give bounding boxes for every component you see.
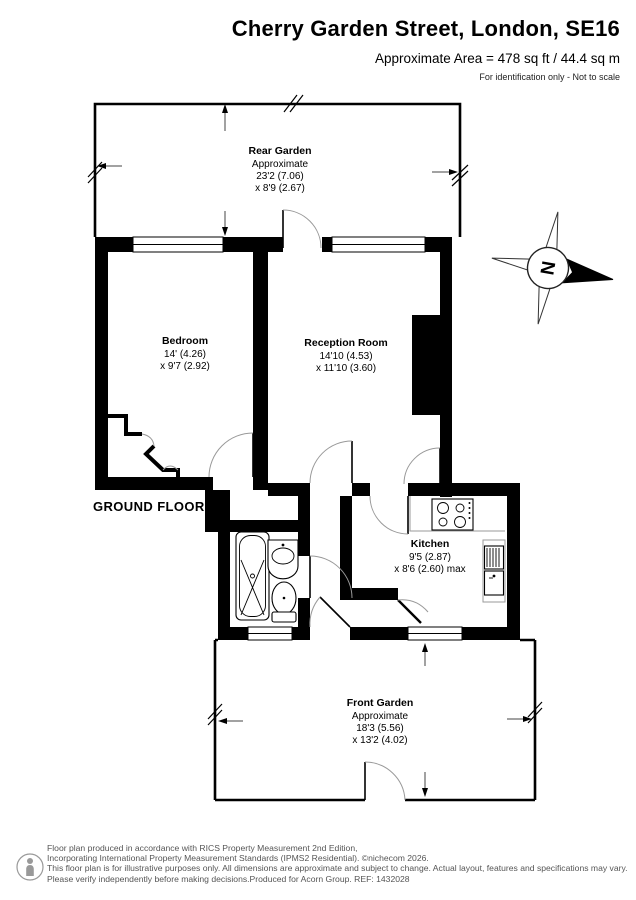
front-garden-room: Front Garden Approximate 18'3 (5.56) x 1… [208, 640, 542, 800]
front-garden-approx: Approximate [352, 711, 409, 722]
rear-garden-label: Rear Garden [248, 145, 311, 157]
toilet-icon [272, 582, 296, 622]
kitchen-dim1: 9'5 (2.87) [409, 552, 451, 563]
front-garden-label: Front Garden [347, 697, 414, 709]
kitchen-label: Kitchen [411, 538, 450, 550]
bedroom-alcove [108, 416, 178, 477]
chimney-breast [412, 315, 440, 415]
bedroom-room: Bedroom 14' (4.26) x 9'7 (2.92) [160, 335, 210, 372]
reception-dim1: 14'10 (4.53) [319, 351, 372, 362]
door-reception [310, 441, 352, 483]
rear-garden-dim2: x 8'9 (2.67) [255, 183, 305, 194]
kitchen-dim2: x 8'6 (2.60) max [394, 564, 465, 575]
footer-line4: Please verify independently before makin… [47, 874, 628, 884]
footer-line1: Floor plan produced in accordance with R… [47, 843, 628, 853]
footer-line3: This floor plan is for illustrative purp… [47, 863, 628, 873]
door-bedroom [209, 433, 253, 477]
bathtub-icon [236, 532, 269, 620]
door-front-entrance [310, 597, 350, 627]
reception-label: Reception Room [304, 337, 387, 349]
hob-icon [432, 499, 473, 530]
window [332, 237, 425, 252]
reception-room: Reception Room 14'10 (4.53) x 11'10 (3.6… [304, 337, 387, 374]
window [133, 237, 223, 252]
window [248, 627, 292, 640]
house-walls [95, 237, 520, 640]
door-vestibule [398, 600, 428, 623]
bedroom-dim2: x 9'7 (2.92) [160, 361, 210, 372]
floor-plan-svg: Rear Garden Approximate 23'2 (7.06) x 8'… [0, 0, 636, 900]
reception-dim2: x 11'10 (3.60) [316, 363, 376, 374]
basin-icon [268, 540, 298, 579]
bedroom-dim1: 14' (4.26) [164, 349, 206, 360]
kitchen-sink-icon [483, 540, 505, 602]
person-logo-icon [15, 851, 45, 888]
front-garden-dim1: 18'3 (5.56) [356, 723, 404, 734]
kitchen-room: Kitchen 9'5 (2.87) x 8'6 (2.60) max [394, 538, 465, 575]
door-rear-garden [283, 210, 321, 248]
footer-disclaimer: Floor plan produced in accordance with R… [47, 843, 628, 884]
windows [133, 237, 462, 640]
footer-line2: Incorporating International Property Mea… [47, 853, 628, 863]
front-gate [365, 762, 405, 800]
door-reception-kitchen [404, 448, 440, 484]
bedroom-label: Bedroom [162, 335, 208, 347]
door-kitchen [370, 496, 408, 534]
rear-garden-dim1: 23'2 (7.06) [256, 171, 304, 182]
rear-garden-room: Rear Garden Approximate 23'2 (7.06) x 8'… [88, 95, 468, 237]
front-garden-dim2: x 13'2 (4.02) [352, 735, 407, 746]
compass-icon: N [482, 202, 623, 336]
window [408, 627, 462, 640]
bathroom-fixtures [236, 532, 298, 622]
dimension-arrows [97, 104, 458, 236]
rear-garden-approx: Approximate [252, 159, 309, 170]
floor-label: GROUND FLOOR [93, 499, 205, 514]
